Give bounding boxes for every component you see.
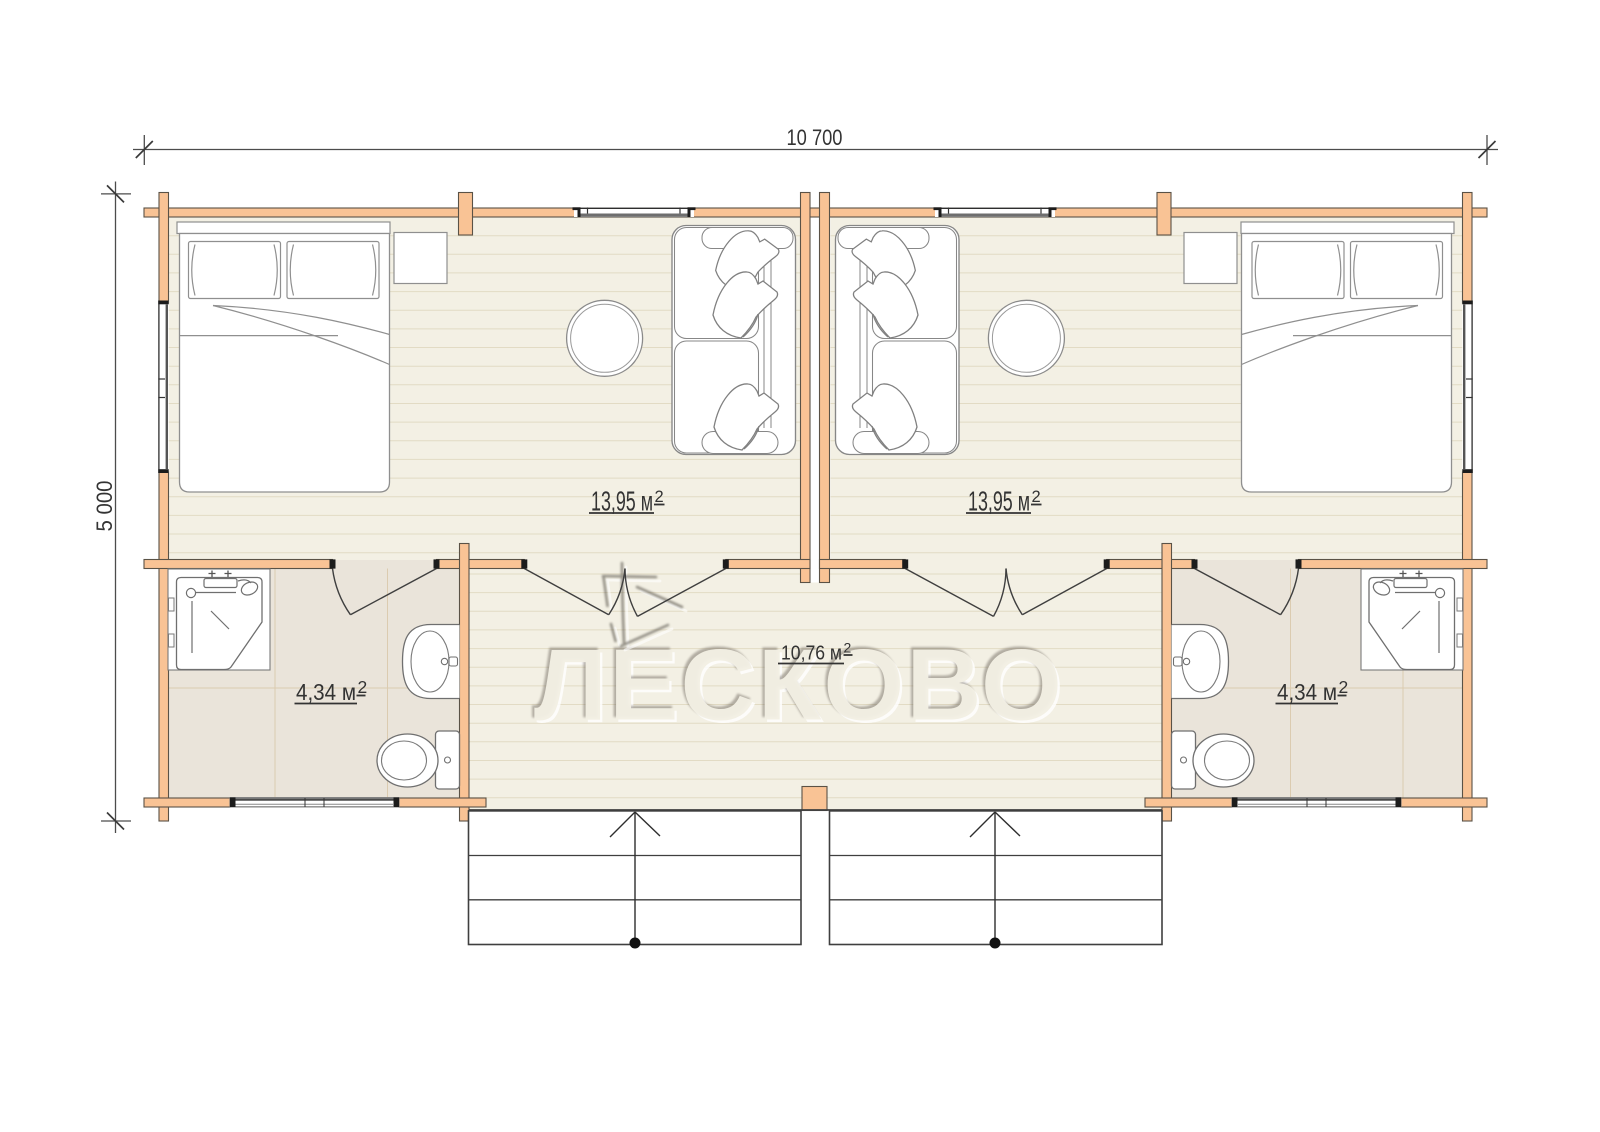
svg-text:5 000: 5 000 [92, 481, 117, 532]
svg-text:4,34 м: 4,34 м [296, 679, 356, 705]
svg-text:2: 2 [358, 677, 368, 697]
svg-text:4,34 м: 4,34 м [1277, 679, 1337, 705]
svg-text:2: 2 [1032, 488, 1041, 506]
svg-text:10 700: 10 700 [787, 125, 843, 150]
svg-text:10,76 м: 10,76 м [781, 642, 842, 664]
svg-text:2: 2 [655, 488, 664, 506]
svg-text:2: 2 [1339, 677, 1349, 697]
svg-text:13,95 м: 13,95 м [968, 486, 1030, 517]
svg-text:2: 2 [844, 640, 852, 656]
svg-text:13,95 м: 13,95 м [591, 486, 653, 517]
